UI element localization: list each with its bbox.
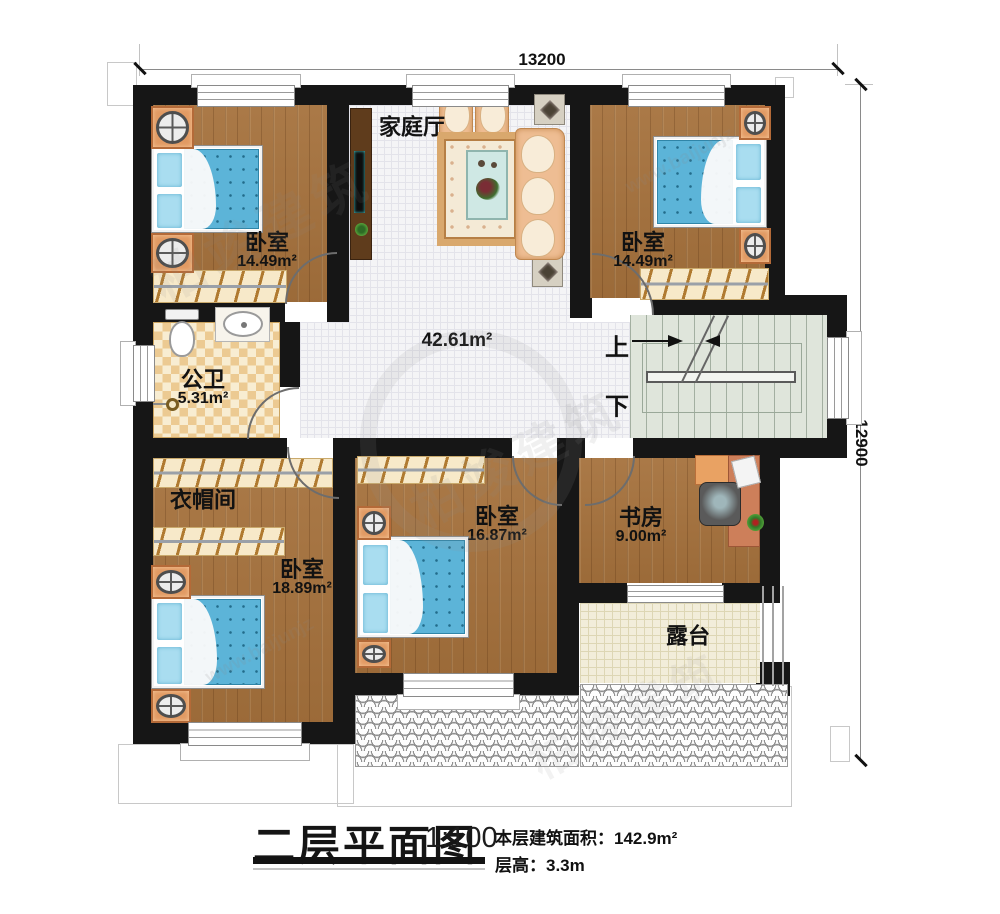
- room-area: 18.89m²: [272, 581, 332, 598]
- nightstand: [151, 233, 194, 273]
- room-name: 卧室: [467, 505, 527, 528]
- room-label-cloakroom: 衣帽间: [170, 488, 236, 511]
- window: [133, 345, 155, 402]
- toilet-bowl: [169, 321, 195, 357]
- flowers-icon: [476, 178, 500, 200]
- room-label-terrace: 露台: [666, 624, 710, 647]
- title-underline: [253, 857, 485, 864]
- bed: [151, 145, 263, 233]
- eaves-outline: [830, 726, 850, 762]
- sink-basin-icon: [223, 311, 263, 337]
- wall-bedroom1-bottom: [335, 302, 349, 322]
- room-name: 家庭厅: [379, 115, 445, 138]
- nightstand: [357, 506, 391, 540]
- room-name: 卧室: [272, 558, 332, 581]
- plant-icon: [747, 514, 764, 531]
- title-underline-thin: [253, 868, 485, 870]
- room-name: 露台: [666, 624, 710, 647]
- lamp-icon: [362, 511, 386, 535]
- lamp-icon: [362, 645, 386, 663]
- wall-bm-bottom: [512, 673, 579, 695]
- floor-plan-canvas: 13200 12900 卧室 14.49m² 家庭厅 卧室 14.49m² 公卫…: [0, 0, 1000, 914]
- decor-dot: [478, 160, 485, 167]
- floor-area-value: 142.9m²: [614, 829, 677, 848]
- floor-area-line: 本层建筑面积：142.9m²: [495, 824, 677, 849]
- table-lamp-icon: [540, 100, 560, 120]
- nightstand: [357, 640, 391, 668]
- wall-bl-bottom: [300, 722, 355, 744]
- window: [412, 85, 509, 107]
- window: [403, 673, 514, 697]
- stairs-up-label: 上: [605, 335, 629, 360]
- lamp-icon: [744, 111, 766, 135]
- wall-bl-bottom: [133, 722, 188, 744]
- bed: [653, 136, 767, 228]
- sofa: [515, 128, 565, 260]
- window: [197, 85, 295, 107]
- room-name: 卧室: [613, 231, 673, 254]
- nightstand: [151, 106, 194, 149]
- wall-bathroom-right: [280, 322, 300, 387]
- tv-cabinet: [350, 108, 372, 260]
- plan-scale: 1:100: [425, 822, 498, 855]
- room-label-study: 书房 9.00m²: [616, 506, 667, 546]
- wall-mid-horizontal: [337, 438, 512, 458]
- tv-icon: [354, 151, 365, 213]
- room-name: 公卫: [178, 368, 229, 391]
- room-area: 5.31m²: [178, 391, 229, 408]
- closet-hangers: [640, 268, 769, 300]
- room-label-bathroom: 公卫 5.31m²: [178, 368, 229, 408]
- closet-hangers: [153, 270, 287, 303]
- wall-bedroom2-bottom: [570, 298, 592, 318]
- stairs-up-text: 上: [605, 335, 629, 360]
- nightstand: [739, 106, 771, 140]
- lamp-icon: [156, 238, 189, 268]
- cloakroom-hangers: [153, 527, 285, 556]
- lamp-icon: [156, 570, 186, 594]
- room-area: 14.49m²: [237, 254, 297, 271]
- closet-hangers: [357, 456, 485, 484]
- floor-height-value: 3.3m: [546, 856, 585, 875]
- floor-height-line: 层高：3.3m: [495, 851, 585, 876]
- lamp-icon: [156, 694, 186, 718]
- stair-arrow-stem: [632, 340, 668, 342]
- plant-icon: [355, 223, 368, 236]
- room-area: 9.00m²: [616, 529, 667, 546]
- room-name: 卧室: [237, 231, 297, 254]
- wall-left: [133, 85, 153, 744]
- stairs-down-label: 下: [605, 394, 629, 419]
- room-label-bedroom-top-right: 卧室 14.49m²: [613, 231, 673, 271]
- lamp-icon: [156, 111, 189, 144]
- bed: [151, 595, 265, 689]
- stair-arrow-icon: [668, 335, 683, 347]
- room-name: 衣帽间: [170, 488, 236, 511]
- stairs-down-text: 下: [605, 394, 629, 419]
- lamp-icon: [744, 233, 766, 259]
- stair-handrail: [646, 371, 796, 383]
- roof-tiles: [580, 684, 788, 767]
- room-label-family-hall: 家庭厅: [379, 115, 445, 138]
- drain-line: [153, 403, 167, 405]
- terrace-sliding-door: [627, 585, 724, 603]
- table-lamp-icon: [538, 262, 558, 282]
- nightstand: [151, 565, 191, 599]
- room-area: 14.49m²: [613, 254, 673, 271]
- room-area: 16.87m²: [467, 528, 527, 545]
- dimension-tick: [854, 754, 867, 767]
- nightstand: [739, 228, 771, 264]
- corner-table: [534, 94, 565, 125]
- room-name: 书房: [616, 506, 667, 529]
- dimension-line-top: [140, 69, 838, 70]
- plan-title: 二层平面图: [253, 812, 478, 873]
- room-label-bedroom-top-left: 卧室 14.49m²: [237, 231, 297, 271]
- dimension-width-label: 13200: [502, 50, 582, 70]
- toilet-icon: [165, 309, 199, 320]
- corner-table: [532, 256, 563, 287]
- office-chair: [699, 482, 741, 526]
- wall-bm-bottom: [333, 673, 403, 695]
- window: [628, 85, 725, 107]
- wall-study-bottom: [579, 583, 627, 603]
- window: [827, 337, 849, 419]
- wall-study-bottom: [722, 583, 760, 603]
- floor-area-label: 本层建筑面积：: [495, 829, 614, 848]
- stair-arrow-icon: [705, 335, 720, 347]
- terrace-railing: [762, 586, 786, 686]
- nightstand: [151, 689, 191, 723]
- floor-height-label: 层高：: [495, 856, 546, 875]
- wall-bedroom2-left: [570, 85, 590, 318]
- window: [188, 722, 302, 746]
- room-label-bedroom-bottom-left: 卧室 18.89m²: [272, 558, 332, 598]
- coffee-table: [466, 150, 508, 220]
- room-area: 42.61m²: [422, 331, 493, 351]
- decor-dot: [491, 162, 497, 168]
- room-label-bedroom-bottom-middle: 卧室 16.87m²: [467, 505, 527, 545]
- wall-mid-horizontal: [133, 438, 287, 458]
- hall-area-label: 42.61m²: [422, 331, 493, 351]
- bed: [357, 536, 469, 638]
